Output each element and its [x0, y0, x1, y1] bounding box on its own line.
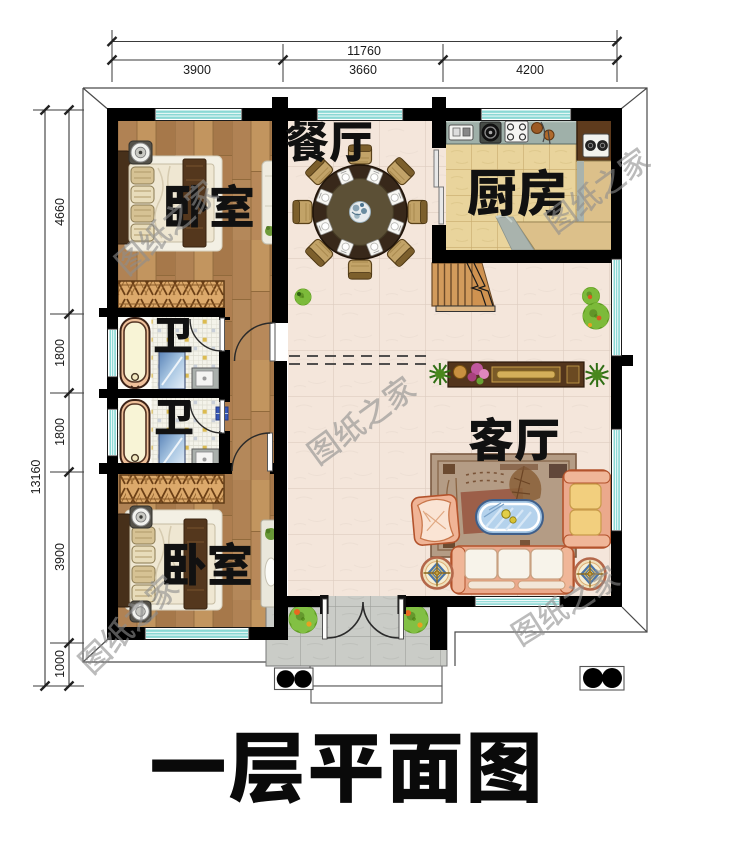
svg-text:11760: 11760: [347, 44, 381, 58]
svg-text:3660: 3660: [349, 63, 377, 77]
svg-text:1800: 1800: [53, 339, 67, 367]
svg-text:1000: 1000: [53, 650, 67, 678]
svg-text:4200: 4200: [516, 63, 544, 77]
svg-text:4660: 4660: [53, 198, 67, 226]
svg-text:1800: 1800: [53, 418, 67, 446]
svg-text:13160: 13160: [29, 460, 43, 495]
svg-text:3900: 3900: [183, 63, 211, 77]
svg-text:3900: 3900: [53, 543, 67, 571]
